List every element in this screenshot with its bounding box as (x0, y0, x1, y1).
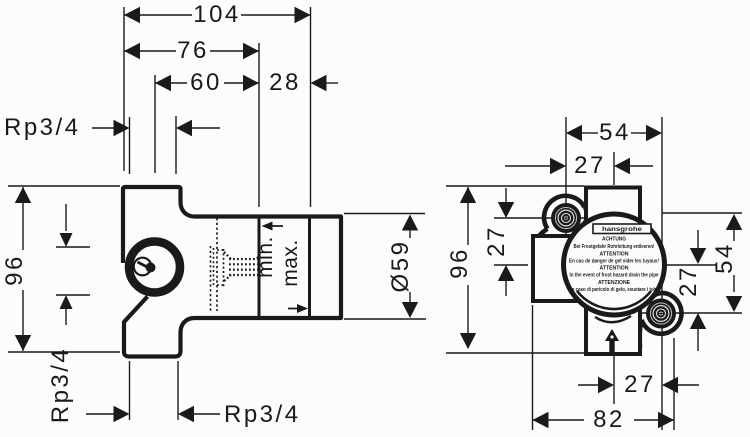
svg-text:54: 54 (599, 119, 631, 146)
svg-text:96: 96 (1, 254, 28, 286)
svg-text:ATTENTION: ATTENTION (600, 251, 629, 257)
svg-text:60: 60 (190, 69, 222, 96)
svg-text:27: 27 (675, 265, 702, 297)
svg-text:ATTENTION: ATTENTION (600, 266, 629, 272)
svg-text:max.: max. (279, 239, 302, 287)
svg-text:In the event of frost hazard d: In the event of frost hazard drain the p… (570, 273, 659, 279)
svg-text:28: 28 (269, 69, 301, 96)
svg-text:27: 27 (624, 371, 656, 398)
svg-text:54: 54 (711, 242, 738, 274)
svg-text:ACHTUNG: ACHTUNG (602, 237, 626, 243)
svg-text:76: 76 (177, 37, 209, 64)
svg-text:82: 82 (593, 406, 625, 433)
svg-text:En cas de danger de gel vider: En cas de danger de gel vider les tuyaux… (569, 259, 659, 265)
svg-text:Ø59: Ø59 (387, 240, 414, 293)
svg-text:Bei Frostgefahr Rohrleitung en: Bei Frostgefahr Rohrleitung entleeren! (574, 244, 655, 250)
svg-text:96: 96 (446, 247, 473, 279)
svg-text:104: 104 (193, 1, 241, 28)
svg-text:min.: min. (254, 236, 277, 278)
svg-text:Rp3/4: Rp3/4 (224, 401, 301, 428)
svg-text:hansgrohe: hansgrohe (602, 226, 642, 233)
svg-text:Rp3/4: Rp3/4 (47, 347, 74, 424)
svg-text:27: 27 (574, 152, 606, 179)
svg-text:Rp3/4: Rp3/4 (4, 114, 81, 141)
svg-text:ATTENZIONE: ATTENZIONE (598, 280, 630, 286)
svg-text:27: 27 (483, 225, 510, 257)
svg-text:In caso di pericolo di gelo, s: In caso di pericolo di gelo, svuotare i … (571, 287, 658, 293)
